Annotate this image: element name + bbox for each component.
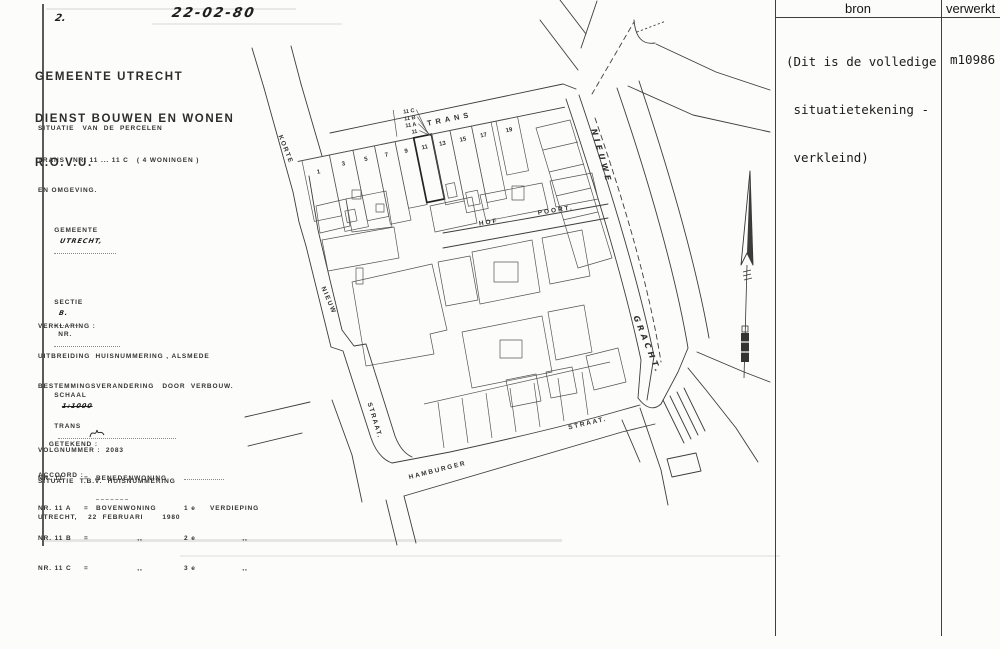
house-number: 11 — [411, 129, 418, 136]
street-label-hof: HOF — [478, 218, 499, 228]
trans-parcel-row: TRANS 1 3 5 7 9 11 13 15 17 — [295, 91, 581, 243]
ledger-verwerkt-value: m10986 — [950, 52, 995, 68]
street-label-trans: TRANS — [426, 110, 473, 128]
parcel-number: 7 — [384, 152, 389, 159]
ledger-divider-left — [775, 0, 776, 636]
ledger-note: (Dit is de volledige situatietekening - … — [786, 22, 937, 198]
ledger-column-verwerkt: verwerkt — [941, 1, 1000, 16]
parcel-number: 13 — [439, 141, 447, 148]
ledger-note-line: (Dit is de volledige — [786, 54, 937, 70]
street-label-korte: KORTE — [276, 134, 294, 165]
ledger-divider-right — [941, 0, 942, 636]
ledger-note-line: verkleind) — [786, 150, 937, 166]
parcel-number: 11 — [421, 144, 429, 151]
parcel-number: 15 — [459, 136, 467, 143]
street-lines — [245, 0, 770, 545]
parcel-number: 17 — [480, 132, 488, 139]
parcel-number: 1 — [316, 169, 321, 176]
street-label-poort: POORT. — [537, 204, 574, 217]
ledger-column-bron: bron — [776, 1, 940, 16]
parcel-number: 5 — [364, 156, 369, 163]
scanned-document-page: 2. 22-02-80 GEMEENTE UTRECHT DIENST BOUW… — [0, 0, 1000, 649]
ledger-header-underline — [775, 17, 1000, 18]
building-outlines — [316, 120, 626, 448]
street-label-straat-bottom: STRAAT. — [568, 416, 608, 432]
parcel-number: 9 — [404, 148, 409, 155]
parcel-number: 3 — [341, 161, 346, 168]
parcel-number: 19 — [505, 127, 513, 134]
ledger-note-line: situatietekening - — [786, 102, 937, 118]
north-arrow-icon — [741, 171, 753, 378]
street-label-straat-left: STRAAT. — [366, 402, 384, 440]
street-label-hamburger: HAMBURGER — [408, 460, 467, 481]
